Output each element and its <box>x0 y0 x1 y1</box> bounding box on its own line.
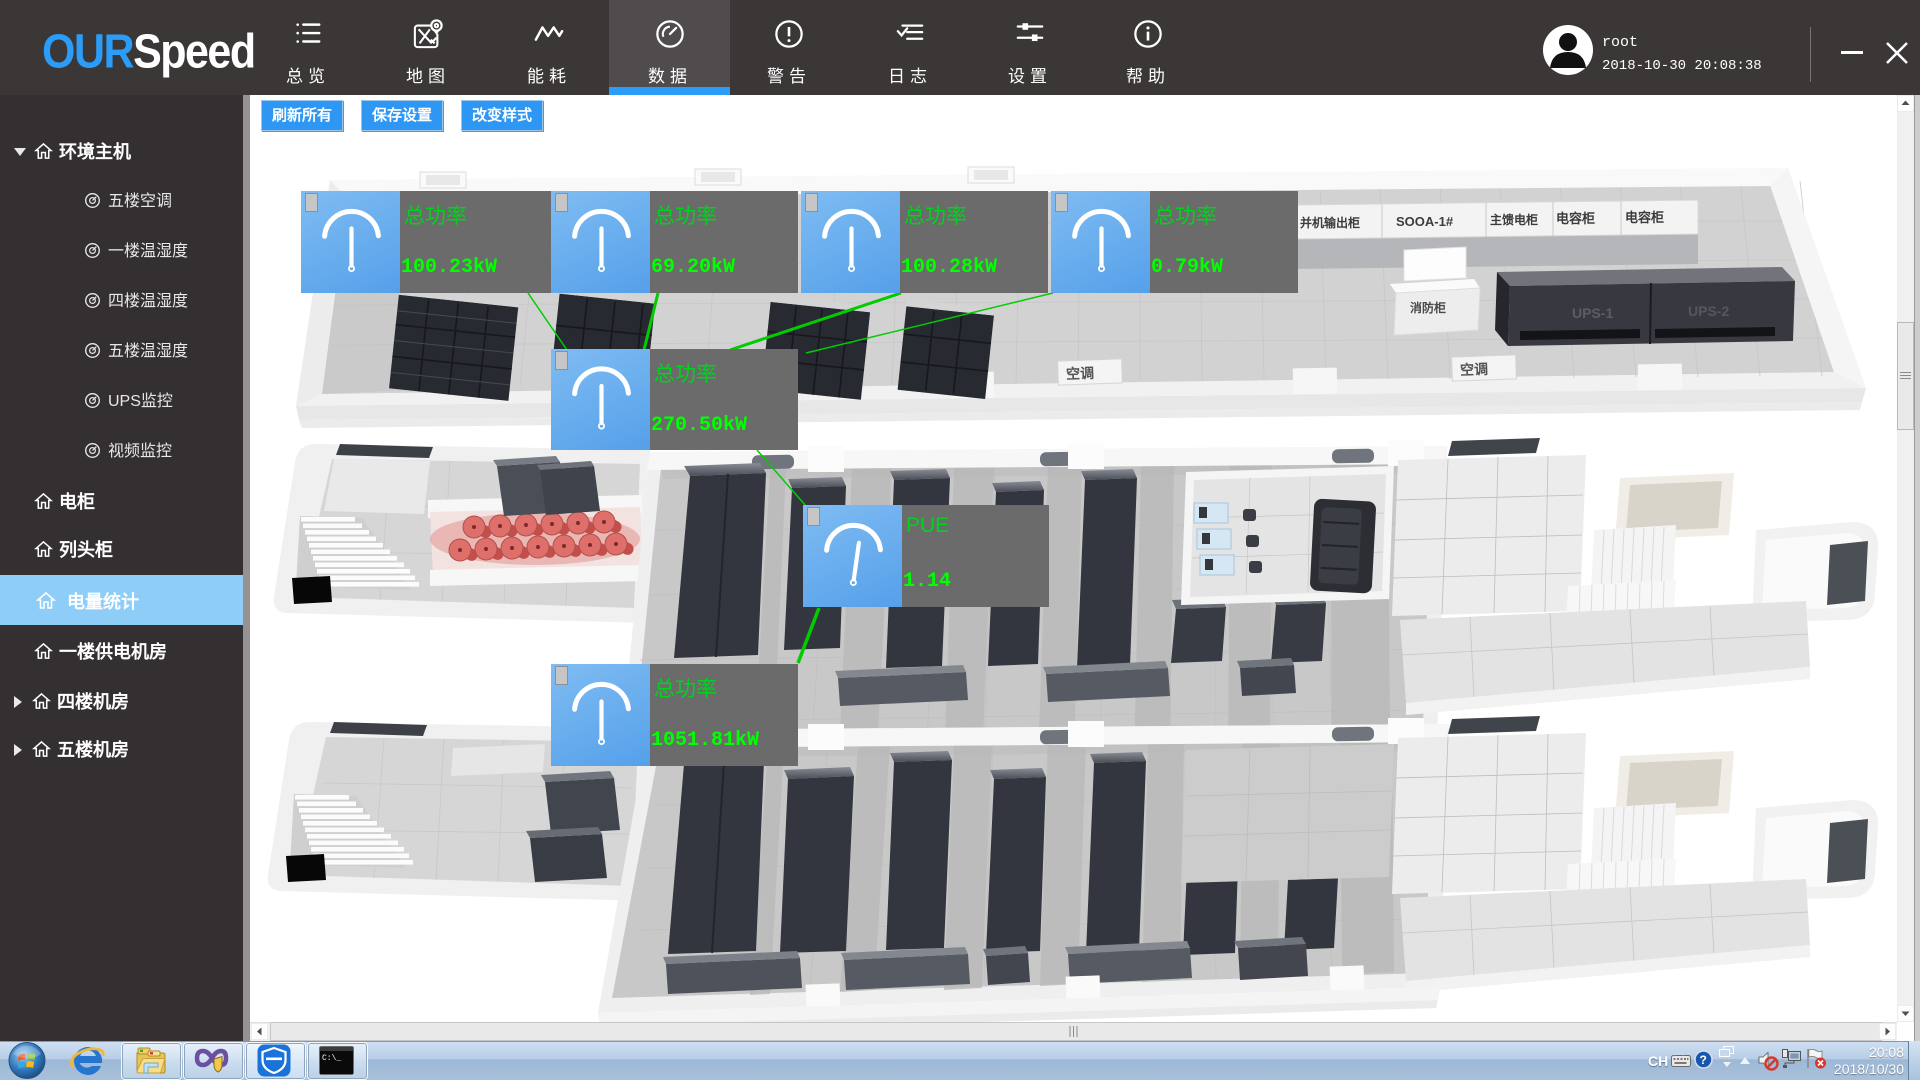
svg-text:UPS-1: UPS-1 <box>1572 305 1613 321</box>
svg-text:SOOA-1#: SOOA-1# <box>1396 214 1454 229</box>
svg-text:UPS-2: UPS-2 <box>1688 303 1729 319</box>
svg-text:并机输出柜: 并机输出柜 <box>1300 215 1360 230</box>
svg-text:?: ? <box>1700 1053 1707 1067</box>
svg-text:空调: 空调 <box>1066 365 1095 382</box>
svg-text:电容柜: 电容柜 <box>1556 211 1595 226</box>
svg-text:消防柜: 消防柜 <box>1410 300 1446 315</box>
svg-text:C:\_: C:\_ <box>322 1054 341 1063</box>
svg-text:电容柜: 电容柜 <box>1625 210 1664 225</box>
svg-text:主馈电柜: 主馈电柜 <box>1490 212 1538 227</box>
svg-text:空调: 空调 <box>1460 361 1489 378</box>
